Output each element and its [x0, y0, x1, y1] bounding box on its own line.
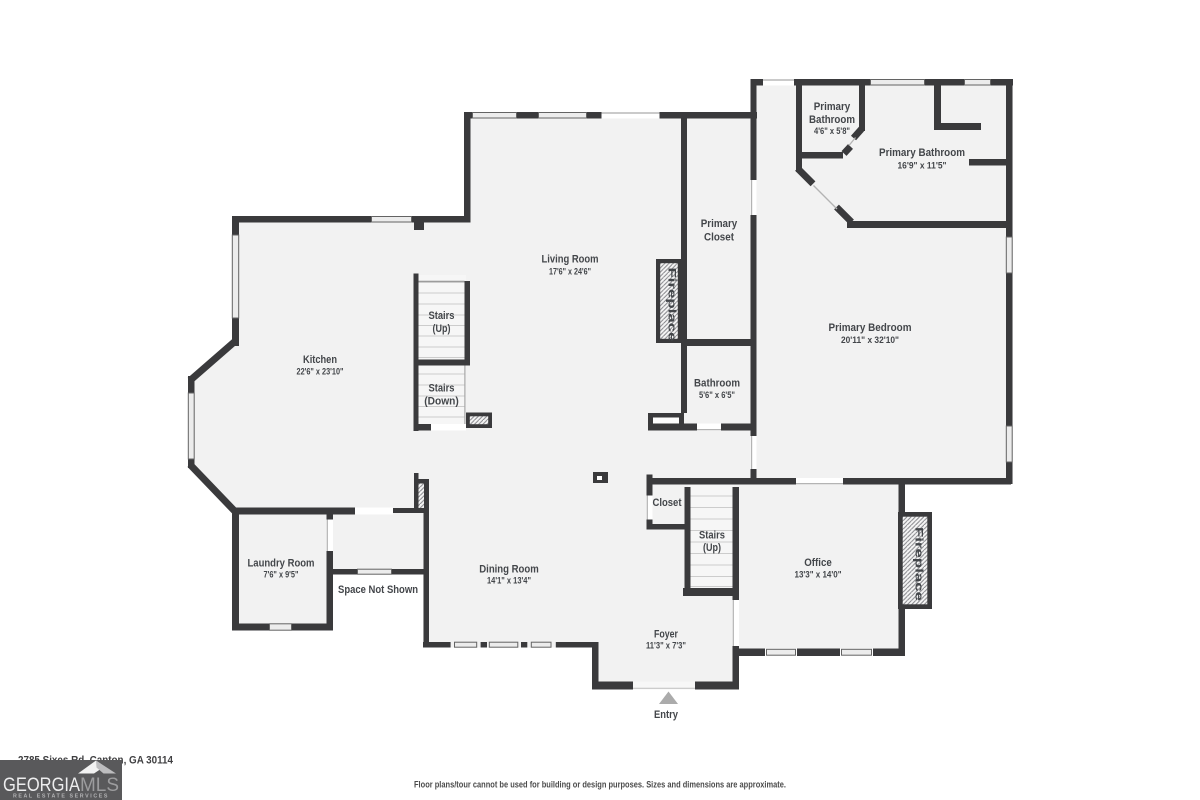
svg-text:7'6" x 9'5": 7'6" x 9'5" — [264, 570, 299, 580]
svg-text:17'6" x 24'6": 17'6" x 24'6" — [549, 267, 591, 277]
svg-text:Stairs: Stairs — [699, 530, 725, 542]
svg-text:(Up): (Up) — [433, 323, 451, 335]
svg-text:Primary Bedroom: Primary Bedroom — [829, 322, 912, 334]
svg-text:4'6" x 5'8": 4'6" x 5'8" — [814, 126, 850, 136]
svg-text:Bathroom: Bathroom — [809, 114, 855, 126]
svg-text:Primary Bathroom: Primary Bathroom — [879, 147, 965, 159]
svg-text:Stairs: Stairs — [429, 310, 455, 322]
svg-text:(Up): (Up) — [703, 542, 721, 554]
svg-text:22'6" x 23'10": 22'6" x 23'10" — [297, 367, 344, 377]
svg-text:(Down): (Down) — [424, 396, 459, 408]
svg-text:16'9" x 11'5": 16'9" x 11'5" — [898, 161, 947, 171]
svg-text:14'1" x 13'4": 14'1" x 13'4" — [487, 576, 531, 586]
svg-text:Bathroom: Bathroom — [694, 378, 740, 390]
svg-text:Living Room: Living Room — [542, 254, 599, 266]
svg-text:Closet: Closet — [704, 232, 734, 244]
svg-text:Primary: Primary — [701, 218, 738, 230]
svg-text:Foyer: Foyer — [654, 629, 679, 641]
svg-text:5'6" x 6'5": 5'6" x 6'5" — [699, 390, 735, 400]
svg-text:Primary: Primary — [814, 101, 851, 113]
svg-text:Floor plans/tour cannot be use: Floor plans/tour cannot be used for buil… — [414, 780, 786, 791]
svg-text:Laundry Room: Laundry Room — [248, 558, 315, 570]
svg-text:Space Not Shown: Space Not Shown — [338, 584, 418, 596]
svg-text:Closet: Closet — [653, 497, 682, 509]
svg-text:11'3" x 7'3": 11'3" x 7'3" — [646, 641, 686, 651]
svg-text:Kitchen: Kitchen — [303, 354, 337, 366]
svg-text:Entry: Entry — [654, 709, 679, 721]
svg-text:Office: Office — [804, 557, 832, 569]
svg-text:13'3" x 14'0": 13'3" x 14'0" — [795, 570, 842, 580]
svg-text:Stairs: Stairs — [429, 383, 455, 395]
svg-text:20'11" x 32'10": 20'11" x 32'10" — [841, 335, 899, 345]
svg-text:Fireplace: Fireplace — [913, 527, 925, 601]
svg-text:REAL ESTATE SERVICES: REAL ESTATE SERVICES — [13, 794, 109, 800]
svg-text:Fireplace: Fireplace — [666, 268, 678, 342]
svg-text:Dining Room: Dining Room — [479, 564, 539, 576]
